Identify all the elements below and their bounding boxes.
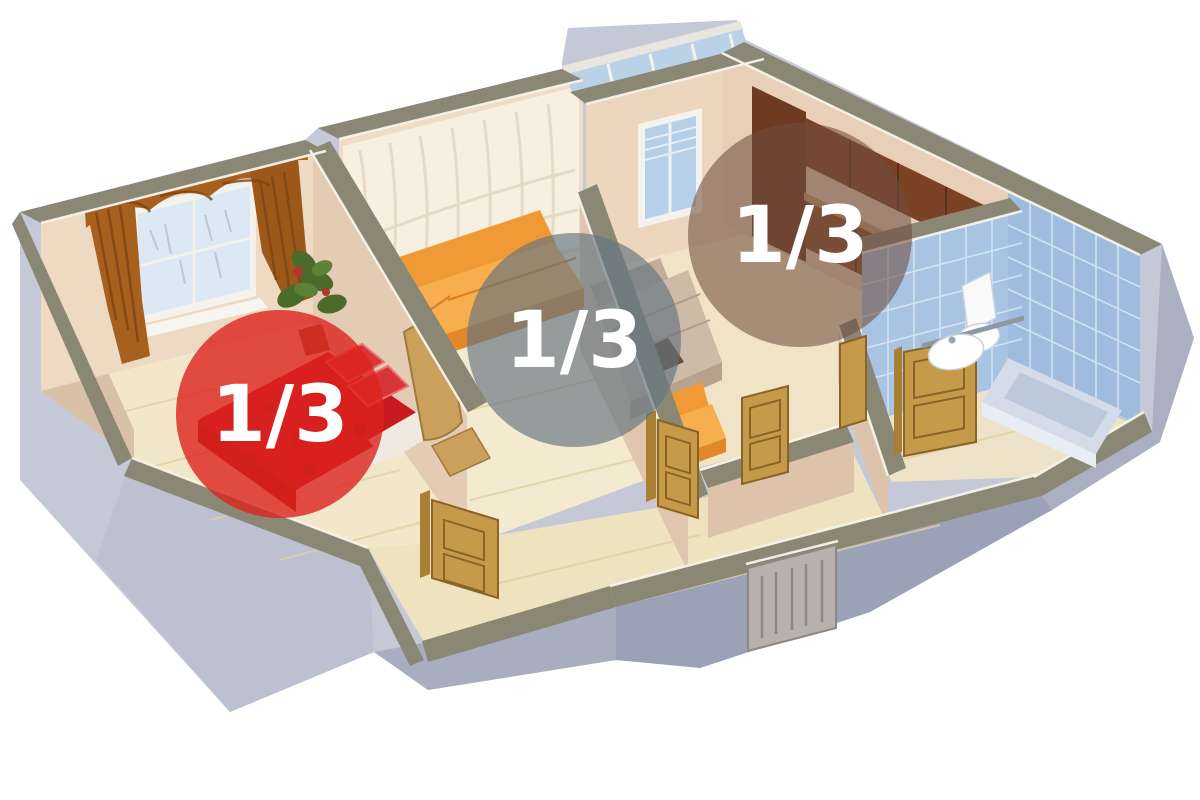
living-room-share-overlay: 1/3	[467, 233, 681, 447]
bedroom-share-label: 1/3	[211, 370, 348, 460]
floor-plan-image: 1/3 1/3 1/3	[0, 0, 1200, 800]
kitchen-door-right	[742, 386, 788, 484]
bathroom-door-small	[840, 336, 866, 428]
door-frame	[646, 410, 656, 502]
bedroom-share-overlay: 1/3	[176, 310, 384, 518]
kitchen-share-label: 1/3	[731, 191, 868, 281]
door-leaf	[742, 386, 788, 484]
plant-flower	[322, 288, 330, 296]
door-frame	[420, 490, 430, 578]
living-room-share-label: 1/3	[505, 296, 642, 386]
faucet	[949, 337, 956, 344]
apartment-render: 1/3 1/3 1/3	[0, 0, 1200, 800]
kitchen-share-overlay: 1/3	[688, 123, 912, 347]
door-leaf	[840, 336, 866, 428]
door-frame	[894, 346, 902, 456]
plant-flower	[293, 267, 303, 277]
